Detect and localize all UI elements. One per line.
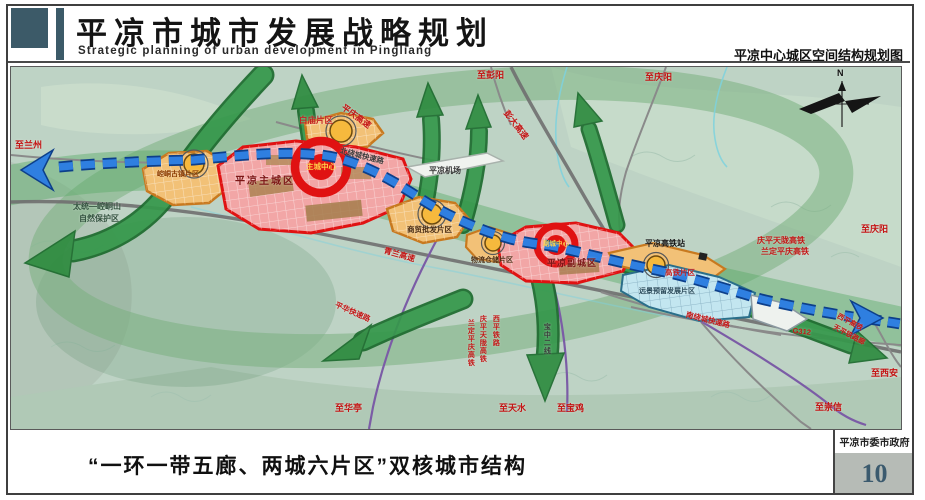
zone-label-main-city: 平凉主城区	[235, 177, 295, 188]
header-divider	[8, 61, 910, 63]
rail-label-xiping-vertical: 西平铁路	[492, 315, 499, 347]
reserve-label-line2: 自然保护区	[79, 215, 119, 223]
rail-label-ldpq-hsr: 兰定平庆高铁	[761, 248, 809, 256]
station-label-hsr: 平凉高铁站	[645, 240, 685, 248]
road-label-to-xian: 至西安	[871, 369, 898, 378]
zone-label-logistics: 物流仓储片区	[471, 257, 513, 264]
zone-label-sub-city: 平凉副城区	[547, 259, 597, 268]
agency-box: 平凉市委市政府 10	[833, 430, 914, 494]
rail-label-baozhong-vertical: 宝中二线	[543, 323, 550, 355]
road-label-to-tianshui: 至天水	[499, 404, 526, 413]
road-label-to-chongxin: 至崇信	[815, 403, 842, 412]
road-label-to-baoji: 至宝鸡	[557, 404, 584, 413]
zone-label-hsr: 高铁片区	[665, 269, 695, 277]
road-label-to-qingyang-right: 至庆阳	[861, 225, 888, 234]
road-label-to-huating: 至华亭	[335, 404, 362, 413]
planning-sheet: 平凉市城市发展战略规划 Strategic planning of urban …	[0, 0, 925, 500]
agency-name: 平凉市委市政府	[835, 430, 914, 453]
planning-map: 至兰州 至彭阳 至庆阳 至庆阳 彭大高速 平庆高速 北绕城快速路 白庙片区 平凉…	[10, 66, 902, 430]
airport-label: 平凉机场	[429, 167, 461, 175]
core-label-main-center: 主城中心	[306, 163, 336, 171]
figure-caption: “一环一带五廊、两城六片区”双核城市结构	[88, 450, 527, 480]
zone-label-kongtong: 崆峒古镇片区	[157, 171, 199, 178]
zone-label-trade: 商贸批发片区	[407, 226, 452, 234]
header-vertical-bar	[56, 8, 64, 60]
reserve-label-line1: 太统—崆峒山	[73, 203, 121, 211]
road-label-to-qingyang-top: 至庆阳	[645, 73, 672, 82]
header-square-logo	[11, 8, 48, 48]
zone-label-baimiao: 白庙片区	[299, 116, 333, 125]
road-label-g312: G312	[792, 327, 811, 337]
compass-n-label: N	[837, 69, 844, 78]
road-label-to-lanzhou: 至兰州	[15, 141, 42, 150]
road-label-to-pengyang: 至彭阳	[477, 71, 504, 80]
page-subtitle: Strategic planning of urban development …	[78, 45, 432, 57]
rail-label-qptl-hsr: 庆平天陇高铁	[757, 237, 805, 245]
core-label-sub-center: 副城中心	[543, 242, 569, 249]
zone-label-reserved: 远景预留发展片区	[639, 288, 695, 295]
page-number: 10	[835, 453, 914, 494]
rail-label-ldpq-vertical: 兰定平庆高铁	[467, 319, 474, 367]
rail-label-qptl-vertical: 庆平天陇高铁	[479, 315, 486, 363]
